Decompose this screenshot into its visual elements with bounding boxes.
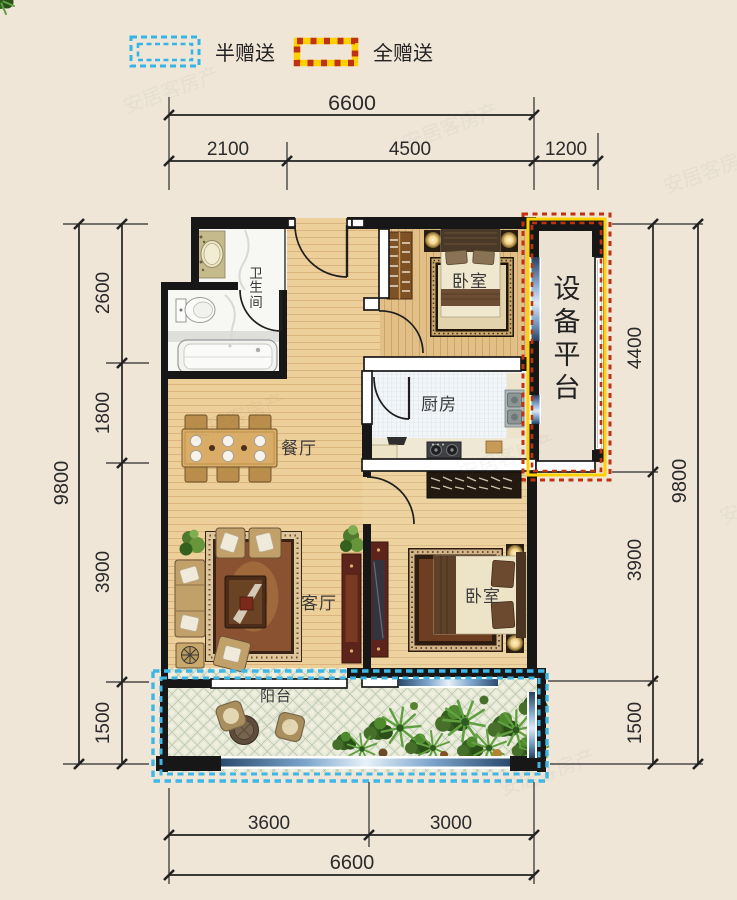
svg-text:生: 生: [249, 280, 263, 295]
svg-text:2600: 2600: [93, 272, 114, 314]
svg-text:3600: 3600: [248, 813, 290, 834]
svg-text:9800: 9800: [669, 459, 691, 504]
svg-text:餐厅: 餐厅: [281, 439, 317, 458]
svg-text:全赠送: 全赠送: [373, 42, 433, 65]
svg-text:卧室: 卧室: [465, 587, 501, 606]
svg-text:3900: 3900: [93, 551, 114, 593]
svg-text:间: 间: [249, 295, 263, 310]
svg-text:设: 设: [554, 274, 581, 304]
svg-text:3900: 3900: [625, 539, 646, 581]
svg-text:2100: 2100: [207, 139, 249, 160]
svg-text:6600: 6600: [328, 91, 376, 115]
svg-text:平: 平: [554, 340, 581, 370]
svg-text:客厅: 客厅: [301, 594, 337, 613]
svg-text:卫: 卫: [249, 266, 263, 281]
svg-text:卧室: 卧室: [452, 272, 488, 291]
svg-text:台: 台: [554, 373, 581, 403]
svg-text:备: 备: [554, 307, 581, 337]
svg-text:1500: 1500: [625, 702, 646, 744]
svg-text:9800: 9800: [51, 461, 73, 506]
svg-text:1200: 1200: [545, 139, 587, 160]
svg-text:1500: 1500: [93, 702, 114, 744]
svg-text:厨房: 厨房: [421, 395, 457, 414]
svg-text:阳台: 阳台: [260, 688, 292, 705]
svg-text:半赠送: 半赠送: [215, 42, 275, 65]
svg-text:3000: 3000: [430, 813, 472, 834]
svg-text:6600: 6600: [330, 852, 375, 874]
svg-text:4400: 4400: [625, 327, 646, 369]
svg-text:1800: 1800: [93, 392, 114, 434]
